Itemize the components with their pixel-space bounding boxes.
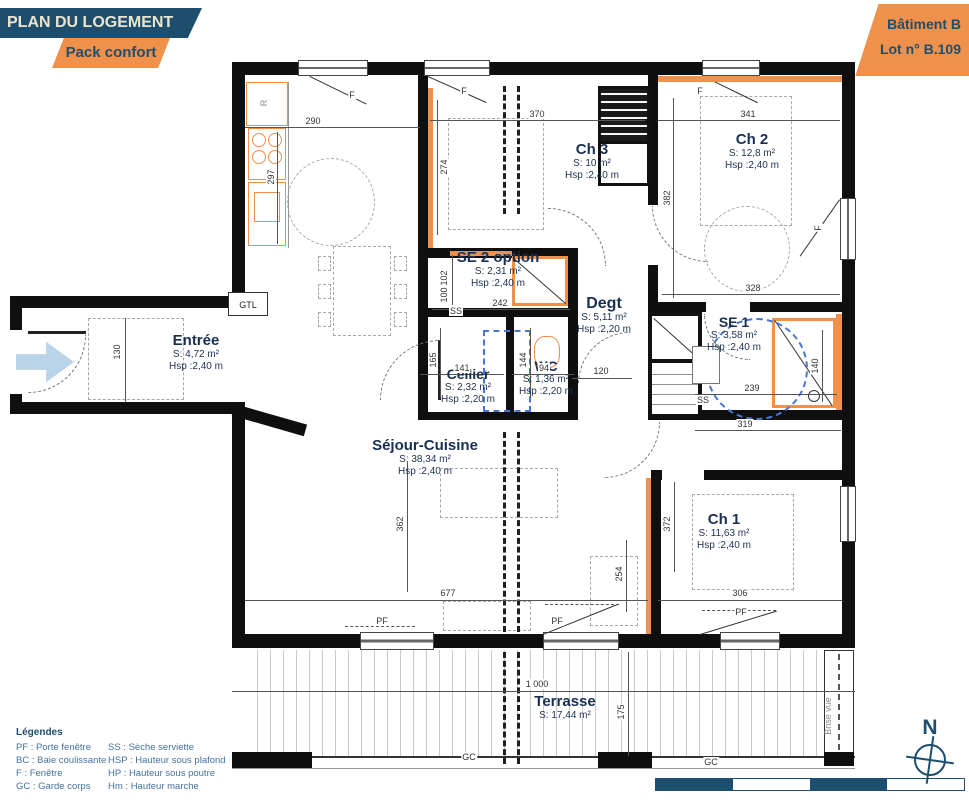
legend-item: SS : Sèche serviette bbox=[108, 741, 226, 754]
window-east-ch2 bbox=[840, 198, 856, 260]
room-area: S: 3,58 m² bbox=[707, 330, 761, 342]
hob-burner bbox=[268, 150, 282, 164]
wall-ch1-west bbox=[651, 470, 661, 634]
dim-239: 239 bbox=[743, 383, 760, 393]
dim-297: 297 bbox=[266, 168, 276, 185]
dim-382: 382 bbox=[662, 189, 672, 206]
dim-line bbox=[430, 120, 645, 121]
room-height: Hsp :2,20 m bbox=[577, 324, 631, 336]
entry-door-leaf bbox=[28, 331, 86, 334]
door-arc-sejour bbox=[380, 340, 440, 400]
wall-west-upper bbox=[232, 62, 245, 308]
shower-drain bbox=[808, 390, 820, 402]
room-area: S: 10 m² bbox=[565, 158, 619, 170]
dim-100: 100 bbox=[439, 286, 449, 303]
room-area: S: 1,36 m² bbox=[519, 374, 573, 386]
dim-140: 140 bbox=[810, 357, 820, 374]
room-se1: SE 1 S: 3,58 m² Hsp :2,40 m bbox=[707, 314, 761, 354]
dim-290: 290 bbox=[304, 116, 321, 126]
terrace-railing-line bbox=[232, 756, 855, 758]
dim-line bbox=[407, 462, 408, 592]
dim-254: 254 bbox=[614, 565, 624, 582]
dim-line bbox=[572, 378, 632, 379]
terrace-edge-line bbox=[232, 768, 855, 769]
joint-dash-line bbox=[503, 432, 506, 632]
chair bbox=[394, 256, 407, 271]
legend-item: PF : Porte fenêtre bbox=[16, 741, 108, 754]
room-sejour: Séjour-Cuisine S: 38,34 m² Hsp :2,40 m bbox=[372, 438, 478, 478]
door-arc-wc bbox=[578, 332, 630, 384]
dim-line bbox=[232, 691, 855, 692]
door-opening-ch1 bbox=[662, 470, 704, 480]
gtl-box: GTL bbox=[228, 292, 268, 316]
dim-274: 274 bbox=[439, 158, 449, 175]
terrace-wall-block bbox=[824, 752, 854, 766]
orange-accent-ch1 bbox=[646, 478, 651, 634]
pack-label: Pack confort bbox=[66, 44, 157, 61]
pack-banner: Pack confort bbox=[52, 38, 170, 68]
joint-dash-line bbox=[503, 652, 506, 764]
chair bbox=[318, 284, 331, 299]
room-terrasse: Terrasse S: 17,44 m² bbox=[534, 694, 595, 722]
lot-banner: Bâtiment B Lot n° B.109 bbox=[853, 4, 969, 76]
dim-line bbox=[822, 330, 823, 402]
entry-door-arc bbox=[28, 335, 86, 393]
wall-entree-top bbox=[10, 296, 232, 308]
window-label-f: F bbox=[348, 90, 356, 100]
orange-accent-se1 bbox=[836, 314, 842, 410]
room-height: Hsp :2,40 m bbox=[169, 361, 223, 373]
plan-title: PLAN DU LOGEMENT bbox=[7, 14, 173, 31]
porte-fenetre-ch1 bbox=[720, 632, 780, 650]
terrace-wall-block bbox=[598, 752, 652, 768]
room-height: Hsp :2,40 m bbox=[565, 170, 619, 182]
chair bbox=[318, 312, 331, 327]
dim-372: 372 bbox=[662, 515, 672, 532]
room-area: S: 2,31 m² bbox=[457, 266, 540, 278]
porte-fenetre-sejour bbox=[360, 632, 434, 650]
north-label: N bbox=[922, 716, 937, 740]
room-area: S: 38,34 m² bbox=[372, 454, 478, 466]
dim-line bbox=[662, 294, 840, 295]
wall-west-lower bbox=[232, 402, 245, 634]
dim-328: 328 bbox=[744, 283, 761, 293]
room-area: S: 2,32 m² bbox=[441, 382, 495, 394]
scale-segment bbox=[733, 779, 810, 790]
chair bbox=[318, 256, 331, 271]
dim-306: 306 bbox=[731, 588, 748, 598]
window-swing-line bbox=[428, 76, 487, 103]
chair bbox=[394, 312, 407, 327]
door-arc-ch2 bbox=[652, 206, 708, 262]
room-name: SE 2 option bbox=[457, 250, 540, 266]
joint-dash-line bbox=[517, 432, 520, 632]
scale-segment bbox=[656, 779, 733, 790]
dim-141: 141 bbox=[453, 363, 470, 373]
dim-line bbox=[245, 127, 420, 128]
brise-vue-dash bbox=[838, 654, 840, 750]
scale-bar bbox=[655, 778, 965, 791]
room-name: Séjour-Cuisine bbox=[372, 438, 478, 454]
scale-segment bbox=[887, 779, 964, 790]
dim-line bbox=[125, 318, 126, 402]
window-east-ch1 bbox=[840, 486, 856, 542]
shaft-hatch bbox=[601, 89, 647, 141]
legend: Légendes PF : Porte fenêtre BC : Baie co… bbox=[16, 726, 296, 793]
legend-col1: PF : Porte fenêtre BC : Baie coulissante… bbox=[16, 741, 108, 793]
room-height: Hsp :2,40 m bbox=[707, 342, 761, 354]
legend-item: BC : Baie coulissante bbox=[16, 754, 108, 767]
room-height: Hsp :2,40 m bbox=[457, 278, 540, 290]
room-name: Ch 3 bbox=[565, 142, 619, 158]
legend-item: HP : Hauteur sous poutre bbox=[108, 767, 226, 780]
wall-entree-bottom bbox=[10, 402, 238, 414]
legend-item: Hm : Hauteur marche bbox=[108, 780, 226, 793]
wall-east bbox=[842, 62, 855, 648]
dim-line bbox=[626, 540, 627, 612]
room-name: Terrasse bbox=[534, 694, 595, 710]
room-entree: Entrée S: 4,72 m² Hsp :2,40 m bbox=[169, 333, 223, 373]
pf-label: PF bbox=[550, 616, 564, 626]
room-name: Entrée bbox=[169, 333, 223, 349]
towel-dryer-label: SS bbox=[696, 395, 710, 405]
dining-table bbox=[333, 246, 391, 336]
bed-ch3 bbox=[448, 118, 544, 230]
gc-label: GC bbox=[461, 752, 477, 762]
dim-175: 175 bbox=[616, 703, 626, 720]
orange-accent-ch2 bbox=[658, 76, 842, 82]
room-height: Hsp :2,40 m bbox=[372, 466, 478, 478]
brise-vue-label: Brise vue bbox=[823, 696, 833, 736]
legend-title: Légendes bbox=[16, 726, 296, 739]
room-area: S: 5,11 m² bbox=[577, 312, 631, 324]
legend-item: F : Fenêtre bbox=[16, 767, 108, 780]
dim-130: 130 bbox=[112, 343, 122, 360]
dim-319: 319 bbox=[736, 419, 753, 429]
hob-burner bbox=[268, 133, 282, 147]
pf-dash bbox=[345, 626, 415, 627]
room-name: Degt bbox=[577, 296, 631, 312]
counter-edge bbox=[288, 82, 289, 248]
room-ch3: Ch 3 S: 10 m² Hsp :2,40 m bbox=[565, 142, 619, 182]
scale-segment bbox=[810, 779, 887, 790]
window-north-2 bbox=[424, 60, 490, 76]
hob-burner bbox=[252, 133, 266, 147]
dim-line bbox=[695, 394, 837, 395]
dim-165: 165 bbox=[428, 351, 438, 368]
orange-accent-ch3 bbox=[428, 88, 433, 248]
gtl-label: GTL bbox=[239, 300, 257, 310]
room-name: SE 1 bbox=[707, 314, 761, 330]
room-name: Ch 2 bbox=[725, 132, 779, 148]
dim-line bbox=[277, 132, 278, 244]
dim-line bbox=[674, 482, 675, 572]
round-rug-ch2 bbox=[704, 206, 790, 292]
porte-fenetre-sejour-2 bbox=[543, 632, 619, 650]
wall-cellier-south bbox=[418, 412, 578, 420]
room-ch1: Ch 1 S: 11,63 m² Hsp :2,40 m bbox=[697, 512, 751, 552]
dim-102: 102 bbox=[439, 269, 449, 286]
fridge-label: R bbox=[259, 99, 269, 108]
towel-dryer-label: SS bbox=[449, 306, 463, 316]
dim-677: 677 bbox=[439, 588, 456, 598]
room-name: Ch 1 bbox=[697, 512, 751, 528]
lot-label: Lot n° B.109 bbox=[853, 41, 961, 57]
joint-dash-line bbox=[517, 652, 520, 764]
room-area: S: 17,44 m² bbox=[534, 710, 595, 722]
room-height: Hsp :2,20 m bbox=[519, 386, 573, 398]
pf-label: PF bbox=[734, 607, 748, 617]
door-opening-se1 bbox=[706, 302, 750, 312]
window-label-f: F bbox=[696, 86, 704, 96]
hob-burner bbox=[252, 150, 266, 164]
legend-item: HSP : Hauteur sous plafond bbox=[108, 754, 226, 767]
room-area: S: 11,63 m² bbox=[697, 528, 751, 540]
window-north-3 bbox=[702, 60, 760, 76]
round-table-sejour bbox=[287, 158, 375, 246]
room-height: Hsp :2,20 m bbox=[441, 394, 495, 406]
dim-94: 94 bbox=[538, 363, 550, 373]
dim-line bbox=[437, 100, 438, 235]
dim-line bbox=[695, 430, 841, 431]
dim-line bbox=[452, 255, 453, 305]
dim-242: 242 bbox=[491, 298, 508, 308]
dim-341: 341 bbox=[739, 109, 756, 119]
dim-370: 370 bbox=[528, 109, 545, 119]
room-ch2: Ch 2 S: 12,8 m² Hsp :2,40 m bbox=[725, 132, 779, 172]
room-area: S: 12,8 m² bbox=[725, 148, 779, 160]
window-label-f: F bbox=[813, 224, 823, 232]
pf-label: PF bbox=[375, 616, 389, 626]
room-degt: Degt S: 5,11 m² Hsp :2,20 m bbox=[577, 296, 631, 336]
gc-label: GC bbox=[703, 757, 719, 767]
closet-dash-line bbox=[503, 86, 506, 214]
closet-dash-line bbox=[517, 86, 520, 214]
floor-plan-page: PLAN DU LOGEMENT Pack confort Bâtiment B… bbox=[0, 0, 969, 800]
plan-title-banner: PLAN DU LOGEMENT bbox=[0, 8, 202, 38]
dim-line bbox=[658, 120, 840, 121]
legend-col2: SS : Sèche serviette HSP : Hauteur sous … bbox=[108, 741, 226, 793]
room-height: Hsp :2,40 m bbox=[697, 540, 751, 552]
dim-144: 144 bbox=[518, 351, 528, 368]
chair bbox=[394, 284, 407, 299]
pf-dash bbox=[545, 604, 619, 605]
dim-362: 362 bbox=[395, 515, 405, 532]
dim-line bbox=[628, 652, 629, 756]
room-area: S: 4,72 m² bbox=[169, 349, 223, 361]
dim-line bbox=[673, 98, 674, 298]
dim-1000: 1 000 bbox=[525, 679, 550, 689]
dim-line bbox=[658, 600, 842, 601]
room-se2: SE 2 option S: 2,31 m² Hsp :2,40 m bbox=[457, 250, 540, 290]
room-height: Hsp :2,40 m bbox=[725, 160, 779, 172]
legend-item: GC : Garde corps bbox=[16, 780, 108, 793]
window-swing-line bbox=[310, 76, 367, 105]
dim-line bbox=[245, 600, 648, 601]
window-label-f: F bbox=[460, 86, 468, 96]
batiment-label: Bâtiment B bbox=[853, 16, 961, 32]
window-north-1 bbox=[298, 60, 368, 76]
dim-120: 120 bbox=[592, 366, 609, 376]
